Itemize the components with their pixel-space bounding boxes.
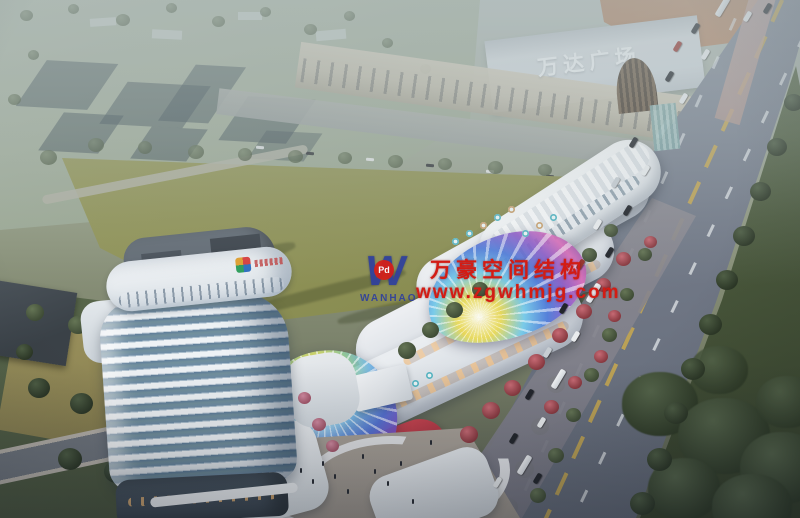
umbrella-icon <box>536 222 543 229</box>
blossom-tree <box>298 392 311 404</box>
terrace-tree-red <box>544 400 559 414</box>
field-treeline-tree <box>288 150 303 163</box>
field-treeline-tree <box>338 152 352 164</box>
street-tree <box>784 94 800 111</box>
terrace-tree-red <box>552 328 568 343</box>
terrace-tree-green <box>422 322 439 338</box>
umbrella-icon <box>426 372 433 379</box>
field-treeline-tree <box>40 150 57 165</box>
field-treeline-tree <box>88 138 104 152</box>
vehicle-car <box>701 48 711 60</box>
watermark-brand: WANHAO <box>360 293 418 304</box>
background-tree <box>68 4 79 14</box>
tower-body <box>98 290 299 493</box>
terrace-tree-red <box>608 310 621 322</box>
field-treeline-tree <box>238 148 252 161</box>
street-tree <box>681 358 705 380</box>
umbrella-icon <box>494 214 501 221</box>
terrace-tree-red <box>482 402 500 419</box>
promenade-tree <box>566 408 581 422</box>
tower-logo-text-marks <box>254 257 283 267</box>
pedestrian <box>362 454 364 459</box>
promenade-tree <box>620 288 634 301</box>
street-tree <box>733 226 755 246</box>
umbrella-icon <box>452 238 459 245</box>
field-treeline-tree <box>438 158 452 170</box>
umbrella-icon <box>480 222 487 229</box>
background-car <box>306 152 314 156</box>
verge-tree <box>70 393 93 414</box>
rendering-scene: 万达广场 <box>0 0 800 518</box>
street-tree <box>630 492 655 515</box>
street-tree <box>647 448 672 471</box>
background-tree <box>166 3 177 13</box>
background-tree <box>116 14 130 26</box>
pedestrian <box>334 474 336 479</box>
background-tree <box>20 10 33 21</box>
promenade-tree <box>548 448 564 463</box>
pedestrian <box>300 468 302 473</box>
promenade-tree <box>584 368 599 382</box>
watermark: W Pd WANHAO 万豪空间结构 www.zgwhmjg.com <box>352 246 592 318</box>
field-treeline-tree <box>538 164 552 176</box>
tower-logo <box>235 257 251 273</box>
terrace-tree-red <box>616 252 631 266</box>
promenade-tree <box>638 248 652 261</box>
pedestrian <box>430 440 432 445</box>
street-tree <box>664 402 688 424</box>
background-tree <box>8 94 21 105</box>
terrace-tree-red <box>568 376 582 389</box>
background-car <box>256 146 264 150</box>
umbrella-icon <box>550 214 557 221</box>
street-tree <box>767 138 787 156</box>
background-tree <box>304 24 317 35</box>
umbrella-icon <box>508 206 515 213</box>
terrace-tree-green <box>604 224 618 237</box>
umbrella-icon <box>412 380 419 387</box>
verge-tree <box>28 378 50 398</box>
blossom-tree <box>326 440 339 452</box>
umbrella-icon <box>522 230 529 237</box>
background-tree <box>344 11 355 21</box>
field-treeline-tree <box>488 161 503 174</box>
pedestrian <box>374 469 376 474</box>
background-tree <box>260 7 271 17</box>
pedestrian <box>400 461 402 466</box>
background-car <box>426 164 434 168</box>
background-car <box>366 158 374 162</box>
field-treeline-tree <box>188 145 204 159</box>
mall-glass-annex <box>650 103 681 151</box>
background-tree <box>28 50 39 60</box>
terrace-tree-red <box>644 236 657 248</box>
watermark-line1: 万豪空间结构 <box>430 254 586 284</box>
pedestrian <box>322 461 324 466</box>
background-building-roof <box>238 12 262 20</box>
background-building-roof <box>152 29 182 40</box>
background-tree <box>212 16 225 27</box>
verge-tree <box>16 344 33 360</box>
promenade-tree <box>602 328 617 342</box>
pedestrian <box>387 481 389 486</box>
verge-tree <box>26 304 44 321</box>
field-treeline-tree <box>138 141 152 154</box>
promenade-tree <box>530 488 546 503</box>
verge-tree <box>58 448 82 470</box>
watermark-line2: www.zgwhmjg.com <box>416 282 621 304</box>
watermark-logo-badge: Pd <box>374 260 394 280</box>
terrace-tree-red <box>460 426 478 443</box>
umbrella-icon <box>466 230 473 237</box>
blossom-tree <box>312 418 326 431</box>
street-tree <box>699 314 722 335</box>
terrace-tree-green <box>398 342 416 359</box>
terrace-tree-red <box>594 350 608 363</box>
street-tree <box>750 182 771 201</box>
pedestrian <box>347 489 349 494</box>
terrace-tree-red <box>504 380 521 396</box>
pedestrian <box>412 499 414 504</box>
background-tree <box>382 38 393 48</box>
pedestrian <box>312 479 314 484</box>
dark-building <box>0 280 77 366</box>
street-tree <box>716 270 738 290</box>
field-treeline-tree <box>388 155 403 168</box>
